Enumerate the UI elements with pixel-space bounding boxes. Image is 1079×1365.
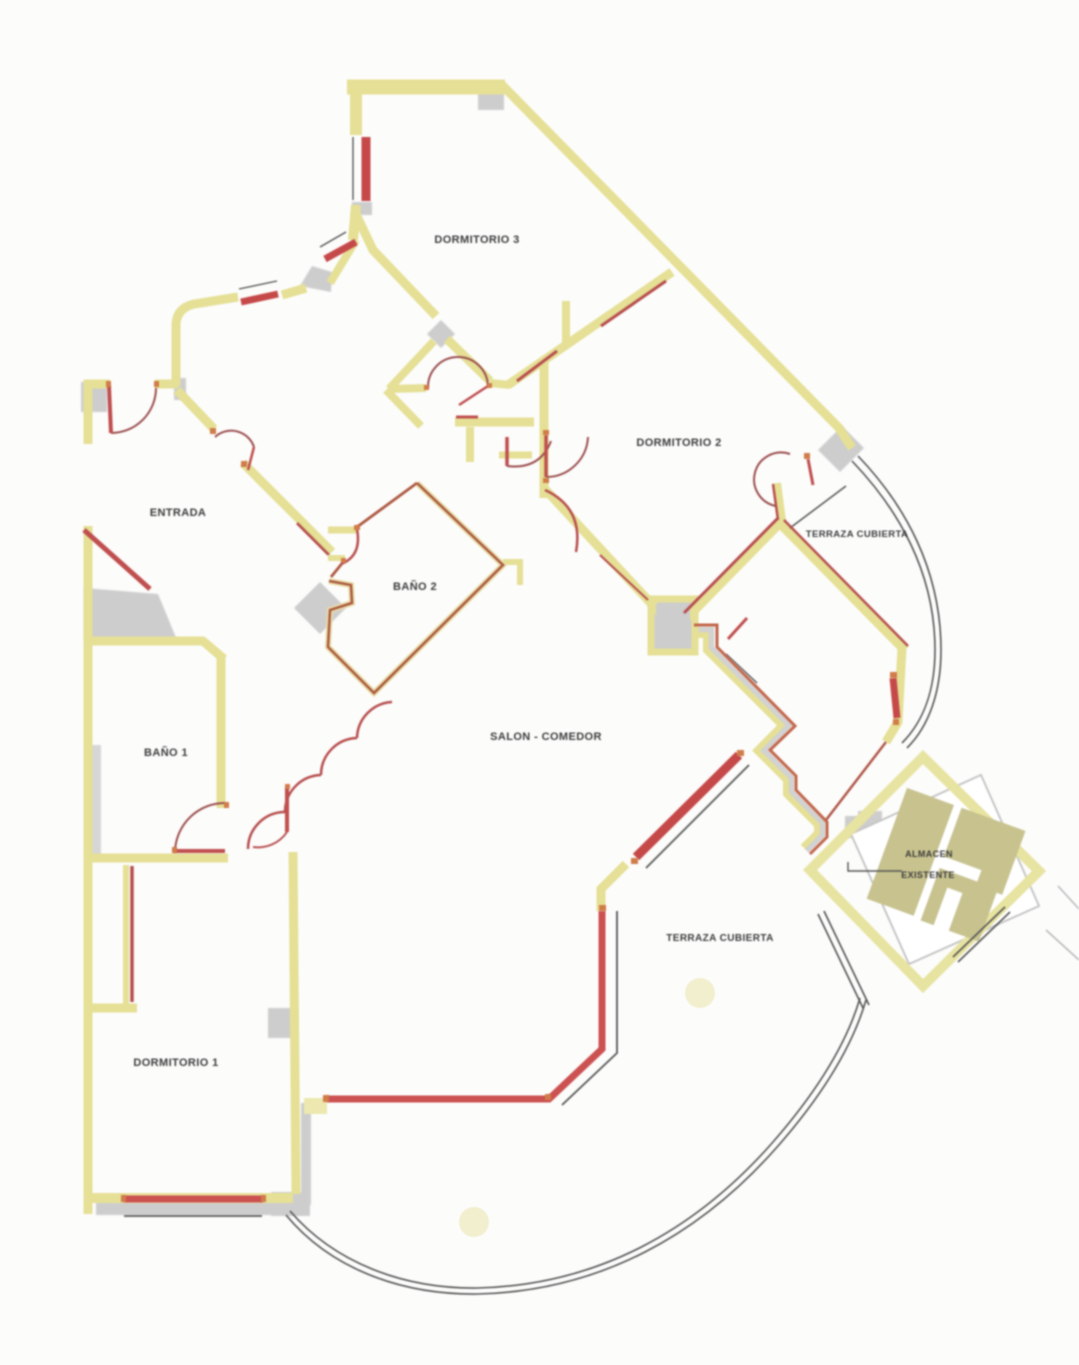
svg-text:TERRAZA CUBIERTA: TERRAZA CUBIERTA xyxy=(666,933,774,944)
svg-text:ENTRADA: ENTRADA xyxy=(150,507,207,519)
svg-text:DORMITORIO 2: DORMITORIO 2 xyxy=(636,437,721,449)
svg-text:DORMITORIO 3: DORMITORIO 3 xyxy=(434,234,519,246)
svg-text:TERRAZA CUBIERTA: TERRAZA CUBIERTA xyxy=(806,529,908,540)
svg-text:SALON - COMEDOR: SALON - COMEDOR xyxy=(490,731,602,743)
svg-text:DORMITORIO 1: DORMITORIO 1 xyxy=(133,1057,218,1069)
svg-text:BAÑO 1: BAÑO 1 xyxy=(144,746,188,759)
svg-text:EXISTENTE: EXISTENTE xyxy=(901,870,955,880)
svg-text:BAÑO 2: BAÑO 2 xyxy=(393,580,437,593)
svg-text:ALMACEN: ALMACEN xyxy=(905,849,953,859)
